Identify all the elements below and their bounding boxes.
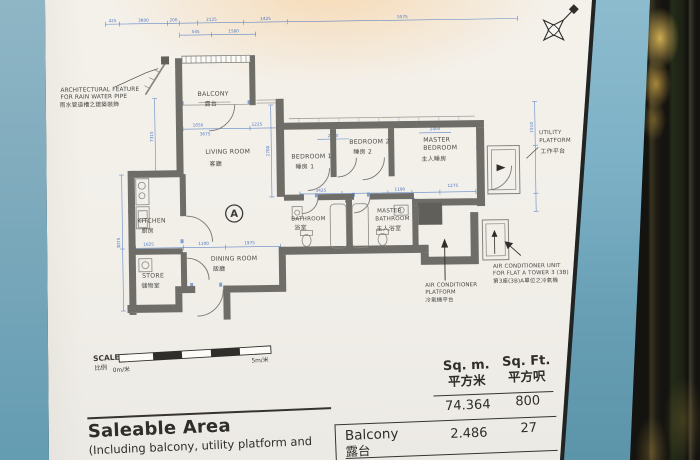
room-label-master-bathroom-zh: 主人浴室 — [376, 224, 401, 232]
room-label-store-zh: 儲物室 — [141, 282, 160, 290]
room-label-balcony: BALCONY — [197, 91, 228, 98]
utility-platform-structure — [487, 145, 520, 193]
svg-text:425: 425 — [108, 18, 116, 23]
ac-unit-zh: 第3座(3B)A單位之冷氣機 — [493, 276, 558, 285]
room-label-master-bathroom-1: MASTER — [377, 208, 402, 214]
ac-platform-structure — [482, 220, 509, 260]
room-label-dining: DINING ROOM — [211, 255, 258, 263]
room-label-master-bedroom-1: MASTER — [423, 136, 451, 143]
ac-platform-line2: PLATFORM — [425, 289, 456, 295]
svg-text:1100: 1100 — [198, 241, 209, 246]
ac-platform-zh: 冷氣機平台 — [425, 295, 454, 303]
bathroom-kitchen-fixtures — [136, 175, 409, 272]
svg-text:1225: 1225 — [252, 122, 263, 127]
col-header-sqft-zh: 平方呎 — [497, 369, 558, 386]
room-label-master-bedroom-zh: 主人睡房 — [421, 155, 446, 163]
ac-unit-line2: FOR FLAT A TOWER 3 (3B) — [493, 270, 569, 277]
room-label-bedroom2: BEDROOM 2 — [349, 138, 390, 146]
balcony-window-wall — [182, 52, 475, 120]
duct-shaft — [418, 203, 442, 225]
scale-five-label: 5m/米 — [251, 356, 269, 365]
room-label-master-bathroom-2: BATHROOM — [375, 216, 409, 222]
room-label-living: LIVING ROOM — [205, 148, 250, 156]
svg-text:1850: 1850 — [193, 122, 204, 127]
walls — [124, 52, 487, 321]
balcony-row-label: Balcony 露台 — [345, 426, 400, 459]
col-header-sqft: Sq. Ft. 平方呎 — [496, 354, 557, 386]
room-label-bathroom-zh: 浴室 — [294, 223, 307, 231]
arch-feature-zh: 雨水管道槽之建築裝飾 — [60, 100, 120, 109]
room-label-bedroom1: BEDROOM 1 — [291, 153, 332, 161]
svg-text:1510: 1510 — [529, 122, 534, 133]
ac-unit-line1: AIR CONDITIONER UNIT — [493, 263, 561, 270]
saleable-sqft-value: 800 — [497, 393, 558, 410]
scale-zero-label: 0m/米 — [113, 365, 131, 374]
svg-text:5575: 5575 — [397, 14, 408, 19]
area-table: Sq. m. 平方米 Sq. Ft. 平方呎 74.364 800 Balcon… — [330, 354, 566, 460]
room-label-master-bedroom-2: BEDROOM — [423, 144, 457, 151]
flat-marker: A — [226, 205, 243, 222]
room-label-dining-zh: 飯廳 — [213, 265, 226, 273]
room-label-bathroom: BATHROOM — [291, 216, 325, 222]
room-label-bedroom1-zh: 睡房 1 — [295, 162, 314, 170]
balcony-sqft-value: 27 — [499, 420, 560, 437]
room-label-store: STORE — [142, 272, 164, 279]
room-label-utility-2: PLATFORM — [539, 138, 571, 144]
svg-text:2700: 2700 — [265, 145, 270, 156]
svg-text:1580: 1580 — [228, 28, 239, 33]
svg-text:2125: 2125 — [206, 17, 217, 22]
svg-text:1190: 1190 — [394, 187, 405, 192]
svg-text:3075: 3075 — [116, 237, 121, 248]
scale-label-zh: 比例 — [94, 363, 107, 372]
svg-text:1825: 1825 — [143, 242, 154, 247]
room-label-balcony-zh: 露台 — [205, 100, 218, 108]
room-label-kitchen-zh: 廚房 — [141, 227, 154, 235]
ac-platform-line1: AIR CONDITIONER — [425, 282, 477, 289]
arch-feature-line2: FOR RAIN WATER PIPE — [61, 94, 128, 101]
svg-text:545: 545 — [192, 29, 200, 34]
balcony-row-label-en: Balcony — [345, 426, 399, 444]
room-label-kitchen: KITCHEN — [137, 217, 166, 224]
north-indicator-icon — [533, 4, 579, 50]
svg-text:200: 200 — [169, 17, 177, 22]
scale-label-en: SCALE — [93, 353, 120, 364]
svg-text:3675: 3675 — [200, 131, 211, 136]
col-header-sqm-zh: 平方米 — [435, 373, 500, 390]
svg-text:3800: 3800 — [138, 18, 149, 23]
photo-of-floorplan-board: 425 3800 200 2125 1425 5575 545 1580 185… — [0, 0, 700, 460]
rain-water-pipe-feature — [144, 56, 170, 94]
svg-text:7315: 7315 — [149, 131, 154, 142]
svg-text:A: A — [230, 209, 238, 220]
room-label-utility-1: UTILITY — [539, 130, 562, 136]
saleable-sqm-value: 74.364 — [436, 397, 501, 414]
col-header-sqm: Sq. m. 平方米 — [434, 358, 499, 390]
svg-text:1275: 1275 — [447, 183, 458, 188]
arch-feature-line1: ARCHITECTURAL FEATURE — [60, 87, 139, 94]
dimension-lines — [105, 16, 540, 311]
svg-text:1975: 1975 — [244, 240, 255, 245]
room-label-bedroom2-zh: 睡房 2 — [353, 148, 372, 156]
room-label-utility-zh: 工作平台 — [540, 147, 565, 155]
svg-text:1425: 1425 — [260, 16, 271, 21]
balcony-sqm-value: 2.486 — [437, 425, 502, 442]
room-label-living-zh: 客廳 — [209, 160, 222, 168]
scale-bar: SCALE 比例 0m/米 5m/米 — [93, 344, 272, 375]
